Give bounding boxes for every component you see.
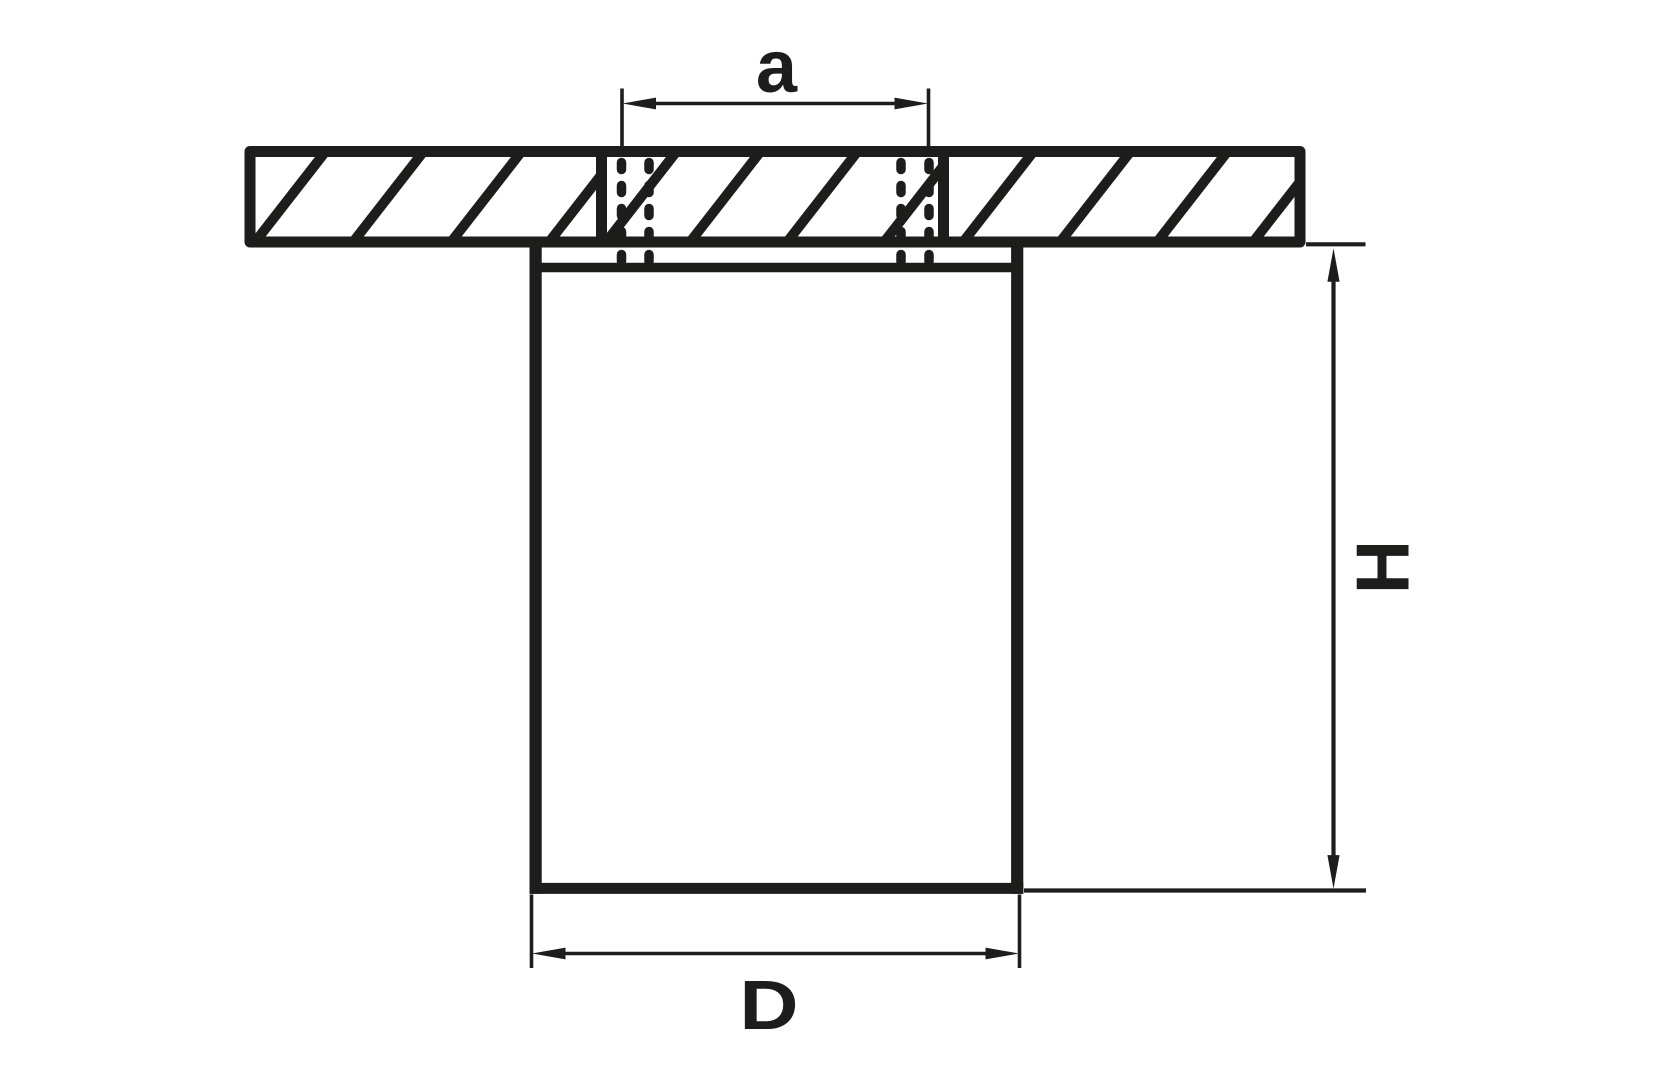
svg-text:a: a <box>756 25 798 108</box>
svg-text:H: H <box>1341 540 1425 594</box>
svg-text:D: D <box>739 967 798 1045</box>
